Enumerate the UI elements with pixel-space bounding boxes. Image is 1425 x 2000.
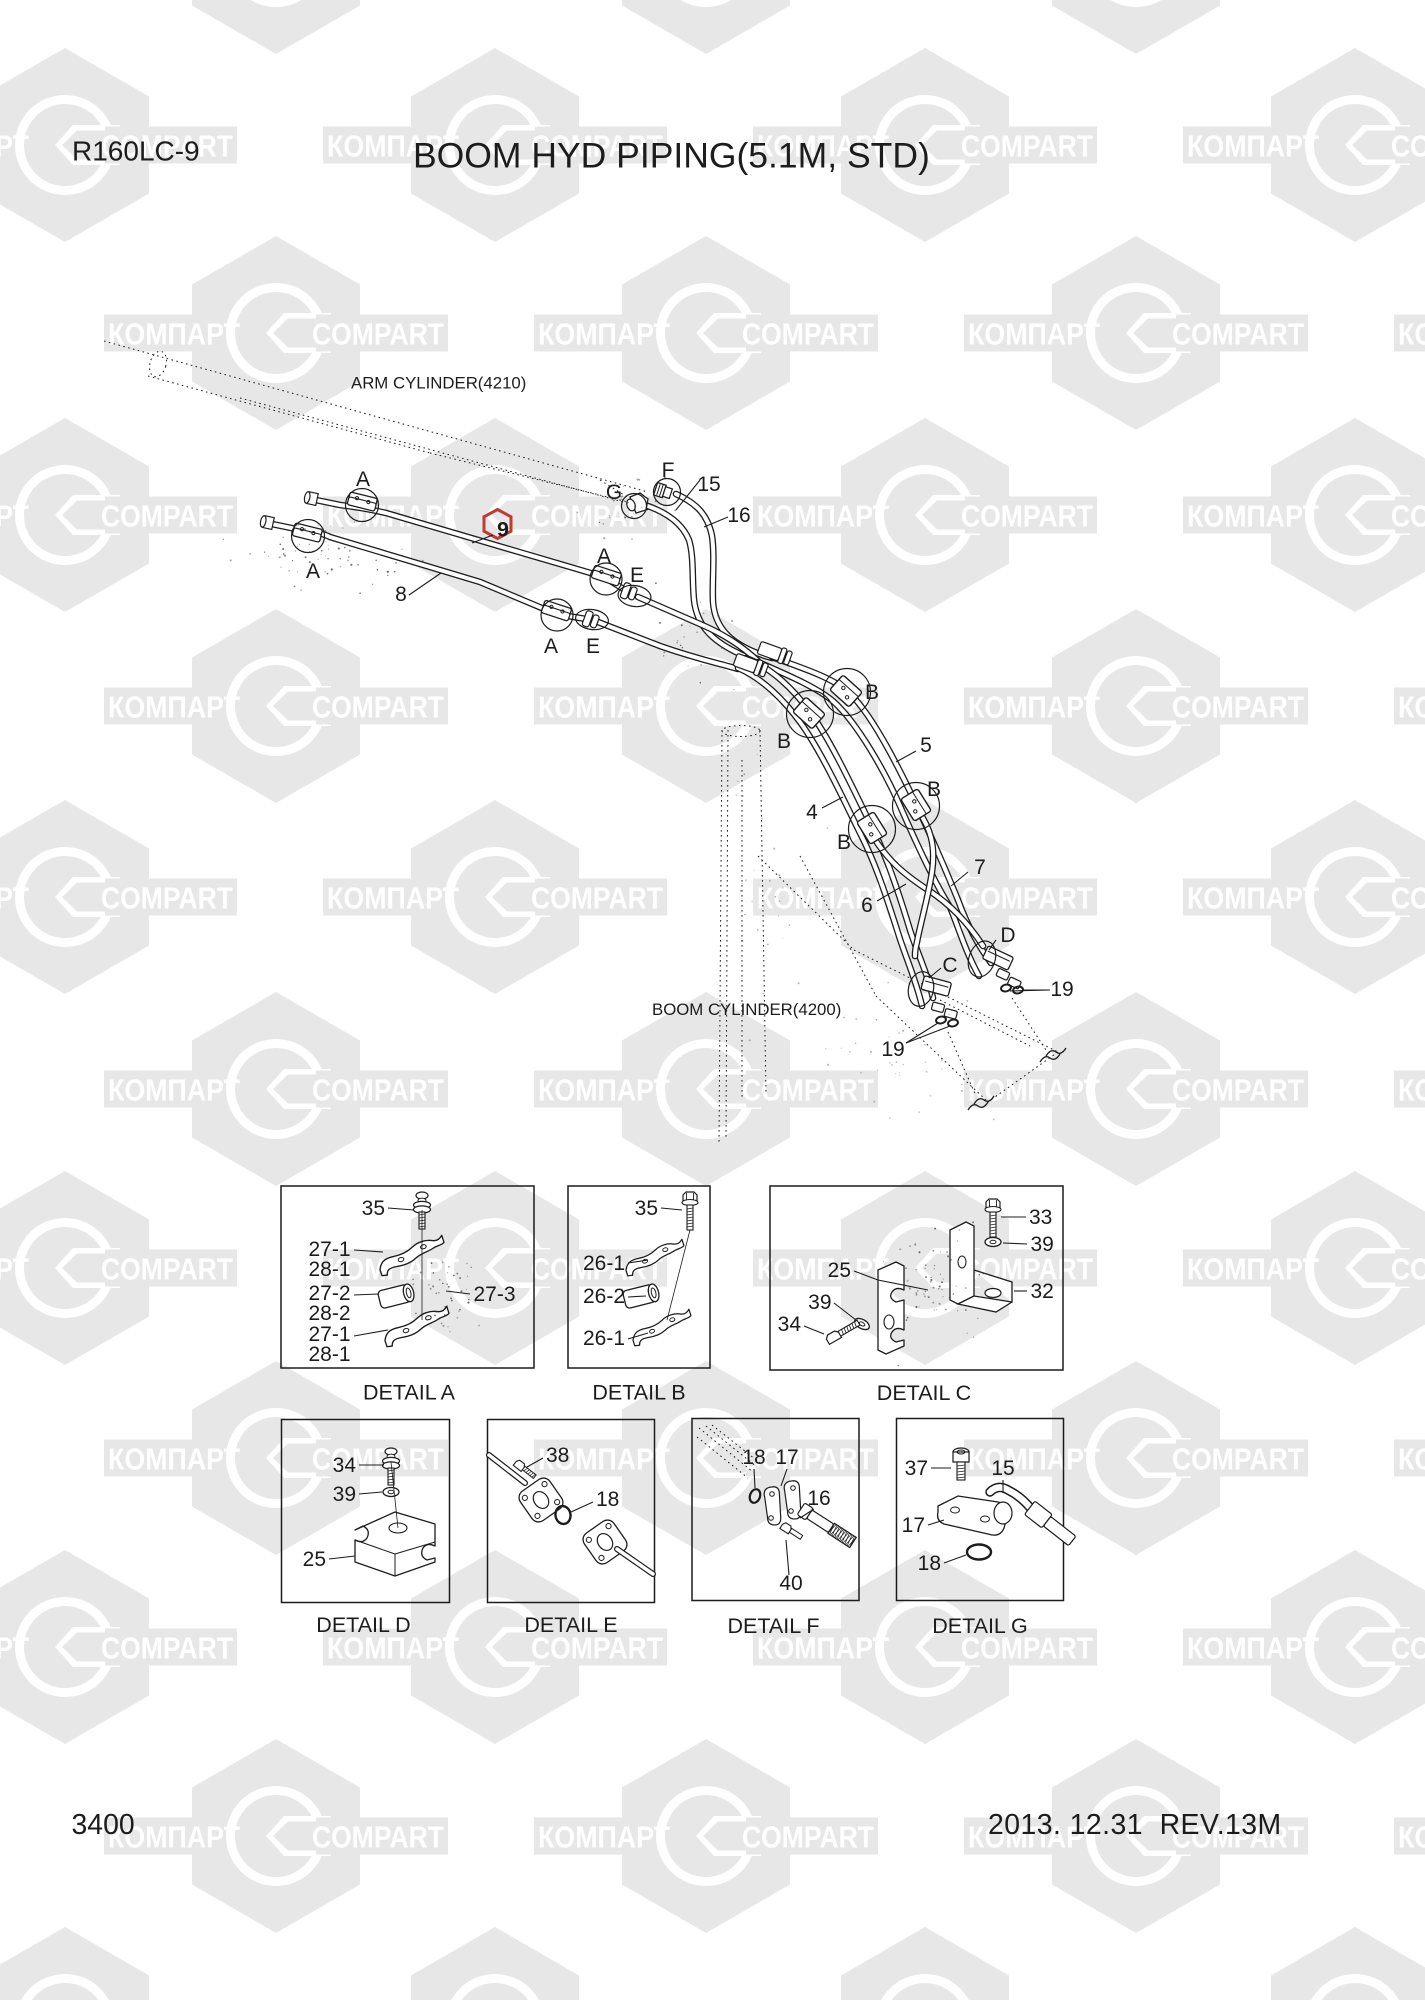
svg-text:25: 25	[828, 1259, 851, 1282]
svg-text:E: E	[630, 564, 644, 587]
svg-text:35: 35	[362, 1197, 385, 1220]
svg-text:DETAIL F: DETAIL F	[728, 1614, 820, 1638]
svg-text:6: 6	[861, 894, 873, 917]
svg-text:BOOM HYD PIPING(5.1M, STD): BOOM HYD PIPING(5.1M, STD)	[413, 136, 930, 176]
svg-text:8: 8	[395, 583, 407, 606]
svg-text:4: 4	[806, 801, 818, 824]
svg-text:A: A	[597, 545, 611, 568]
svg-text:34: 34	[778, 1313, 802, 1336]
svg-text:28-1: 28-1	[308, 1258, 350, 1281]
svg-text:26-1: 26-1	[583, 1252, 625, 1275]
svg-text:E: E	[586, 635, 600, 658]
svg-text:B: B	[927, 778, 941, 801]
svg-text:40: 40	[779, 1572, 802, 1595]
svg-text:34: 34	[333, 1454, 357, 1477]
svg-text:39: 39	[333, 1483, 356, 1506]
svg-text:F: F	[662, 459, 675, 482]
svg-text:BOOM CYLINDER(4200): BOOM CYLINDER(4200)	[652, 1000, 841, 1019]
svg-text:39: 39	[808, 1291, 831, 1314]
svg-text:B: B	[837, 831, 851, 854]
svg-text:28-2: 28-2	[308, 1302, 350, 1325]
svg-text:19: 19	[1050, 978, 1073, 1001]
svg-text:15: 15	[991, 1457, 1014, 1480]
svg-text:26-1: 26-1	[583, 1327, 625, 1350]
svg-text:9: 9	[497, 518, 509, 542]
svg-text:17: 17	[902, 1514, 925, 1537]
svg-text:35: 35	[635, 1197, 658, 1220]
svg-text:16: 16	[807, 1487, 830, 1510]
svg-text:25: 25	[303, 1548, 326, 1571]
svg-text:C: C	[942, 954, 957, 977]
svg-text:38: 38	[546, 1444, 569, 1467]
svg-text:B: B	[777, 730, 791, 753]
svg-text:DETAIL G: DETAIL G	[932, 1614, 1028, 1638]
svg-text:32: 32	[1031, 1280, 1054, 1303]
svg-text:37: 37	[905, 1457, 928, 1480]
svg-text:18: 18	[596, 1488, 619, 1511]
svg-text:DETAIL C: DETAIL C	[877, 1381, 971, 1405]
svg-text:A: A	[544, 635, 558, 658]
svg-text:DETAIL B: DETAIL B	[592, 1381, 685, 1405]
svg-text:7: 7	[974, 856, 986, 879]
svg-text:DETAIL D: DETAIL D	[316, 1613, 410, 1637]
svg-text:2013. 12.31 REV.13M: 2013. 12.31 REV.13M	[988, 1809, 1282, 1841]
svg-text:18: 18	[918, 1552, 941, 1575]
svg-text:5: 5	[920, 734, 932, 757]
svg-text:15: 15	[697, 473, 720, 496]
svg-text:39: 39	[1031, 1233, 1054, 1256]
svg-text:33: 33	[1029, 1206, 1052, 1229]
svg-text:ARM CYLINDER(4210): ARM CYLINDER(4210)	[351, 374, 526, 393]
svg-text:16: 16	[727, 504, 750, 527]
svg-text:D: D	[1000, 924, 1015, 947]
svg-text:DETAIL A: DETAIL A	[363, 1381, 456, 1405]
svg-text:27-3: 27-3	[474, 1283, 516, 1306]
svg-text:26-2: 26-2	[583, 1285, 625, 1308]
svg-text:B: B	[865, 681, 879, 704]
svg-text:A: A	[356, 468, 370, 491]
svg-text:3400: 3400	[72, 1809, 135, 1841]
svg-text:19: 19	[881, 1038, 904, 1061]
svg-text:R160LC-9: R160LC-9	[72, 136, 200, 167]
svg-text:17: 17	[775, 1446, 798, 1469]
svg-text:18: 18	[742, 1446, 765, 1469]
svg-text:DETAIL E: DETAIL E	[524, 1613, 617, 1637]
svg-text:28-1: 28-1	[308, 1343, 350, 1366]
svg-text:A: A	[306, 560, 320, 583]
